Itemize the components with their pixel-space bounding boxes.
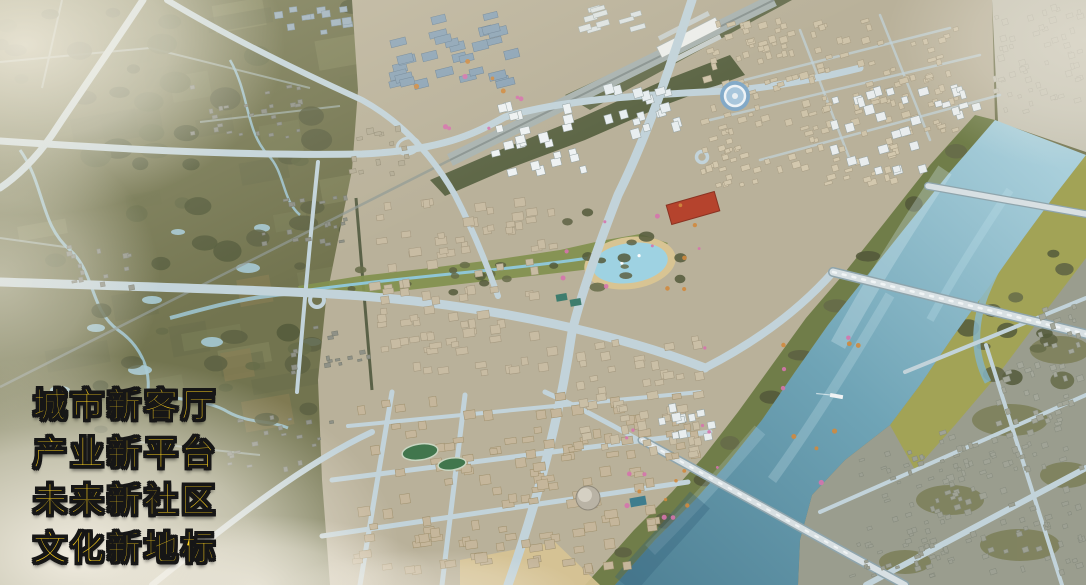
poster-root: 城市新客厅 产业新平台 未来新社区 文化新地标 <box>0 0 1086 585</box>
slogan-line-4: 文化新地标 <box>33 526 218 574</box>
slogan-line-3: 未来新社区 <box>33 478 218 526</box>
slogan-line-1: 城市新客厅 <box>33 383 218 431</box>
slogan-overlay: 城市新客厅 产业新平台 未来新社区 文化新地标 <box>33 383 218 573</box>
slogan-line-2: 产业新平台 <box>33 431 218 479</box>
